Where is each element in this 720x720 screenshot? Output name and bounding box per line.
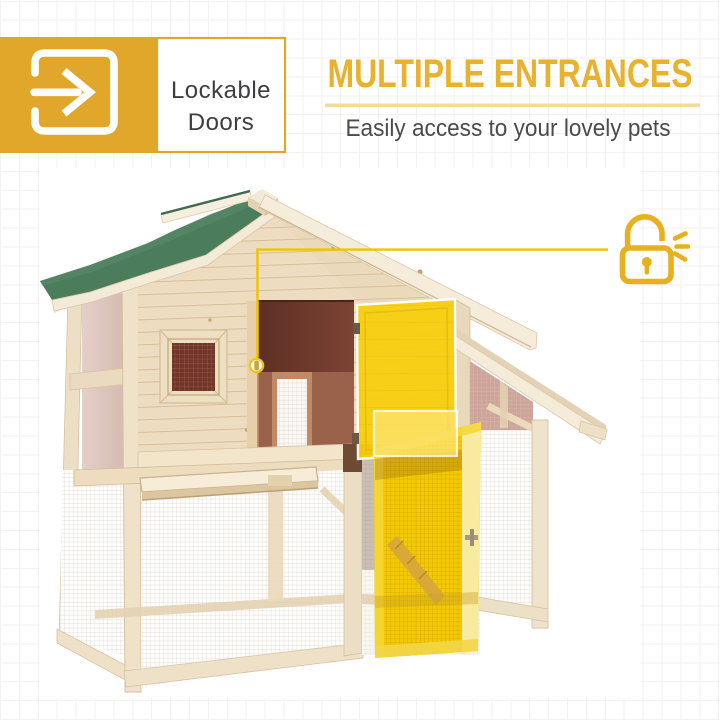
svg-text:MULTIPLE ENTRANCES: MULTIPLE ENTRANCES bbox=[328, 52, 693, 96]
svg-text:Doors: Doors bbox=[188, 109, 255, 136]
svg-text:Lockable: Lockable bbox=[171, 77, 271, 104]
svg-text:Easily access to your lovely p: Easily access to your lovely pets bbox=[346, 115, 671, 142]
